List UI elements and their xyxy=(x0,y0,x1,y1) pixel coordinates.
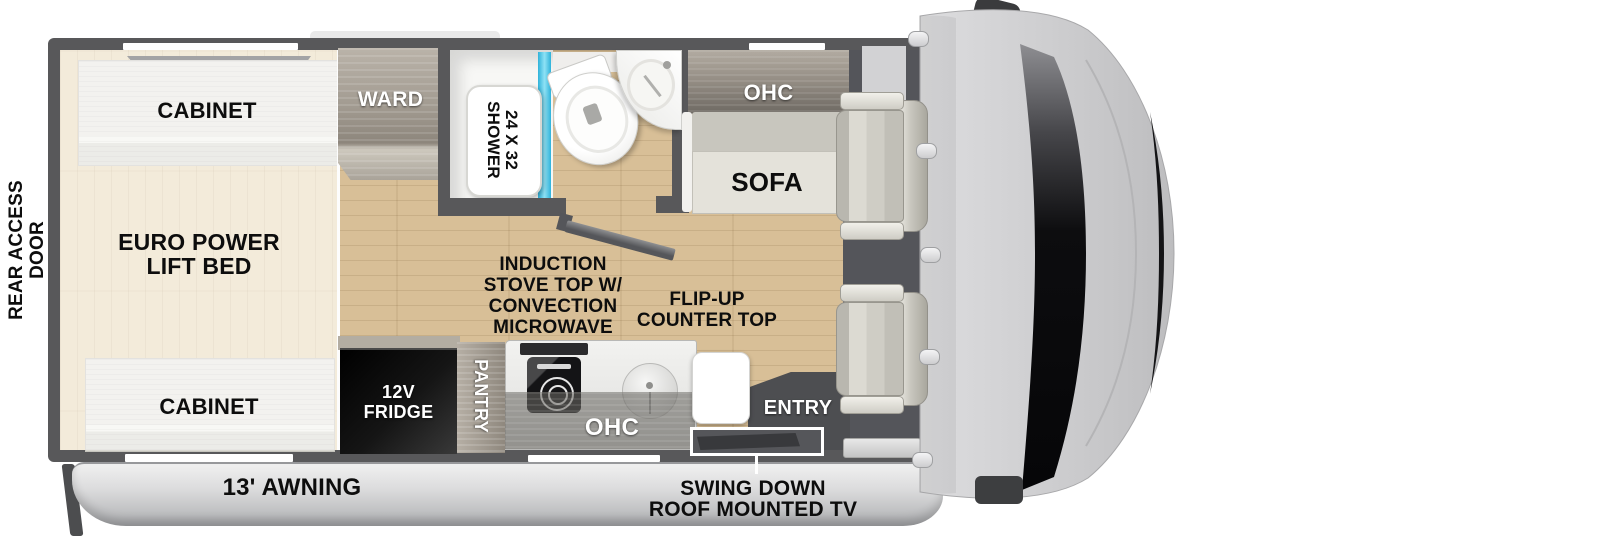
rear-access-door-label: REAR ACCESS DOOR xyxy=(5,130,49,370)
flip-up-counter-note: FLIP-UP COUNTER TOP xyxy=(617,288,797,332)
tv-note-label: SWING DOWN ROOF MOUNTED TV xyxy=(640,476,866,522)
bathroom-wall-bottom xyxy=(438,198,566,216)
awning-label: 13' AWNING xyxy=(182,475,402,501)
sink-faucet xyxy=(663,61,671,69)
stove-slot xyxy=(537,364,571,369)
door-hinge-bump xyxy=(916,143,937,159)
window-bottom-kitchen xyxy=(528,455,660,462)
seat-armrest xyxy=(840,396,904,414)
flip-up-counter xyxy=(692,352,750,424)
kitchen-sink-faucet xyxy=(646,382,653,389)
sofa-armrest-left xyxy=(682,112,692,212)
tv-screen xyxy=(697,433,809,450)
window-top-bedroom xyxy=(123,43,298,50)
rear-access-door-line2: DOOR xyxy=(27,221,48,279)
door-hinge-bump xyxy=(919,349,940,365)
entry-label: ENTRY xyxy=(748,396,848,420)
wardrobe-texture xyxy=(338,48,443,180)
passenger-seat xyxy=(836,92,928,240)
cabinet-top-label: CABINET xyxy=(78,96,336,126)
rear-access-door-line1: REAR ACCESS xyxy=(6,180,27,320)
door-hinge-bump xyxy=(920,247,941,263)
pantry-label: PANTRY xyxy=(470,344,492,448)
overhead-cabinet-kitchen-label: OHC xyxy=(556,414,668,442)
sofa-label: SOFA xyxy=(692,166,842,198)
fridge-12v: 12V FRIDGE xyxy=(340,348,457,454)
window-bottom-bedroom xyxy=(125,454,293,462)
door-hinge-bump xyxy=(908,31,929,47)
seat-armrest xyxy=(840,284,904,302)
counter-vent xyxy=(520,343,588,355)
running-board xyxy=(975,476,1023,504)
euro-power-lift-bed-label: EURO POWER LIFT BED xyxy=(60,227,338,281)
driver-seat xyxy=(836,284,928,414)
cabinet-bottom-label: CABINET xyxy=(85,392,333,422)
seat-armrest xyxy=(840,92,904,110)
wardrobe-label: WARD xyxy=(338,88,443,112)
swing-down-tv xyxy=(690,427,824,456)
door-hinge-bump xyxy=(912,452,933,468)
seat-cushion xyxy=(836,302,904,396)
seat-armrest xyxy=(840,222,904,240)
window-top-living xyxy=(749,43,825,50)
tv-leader-line xyxy=(755,456,758,474)
shower-label: 24 X 32 SHOWER xyxy=(481,90,523,190)
rv-floorplan-diagram: REAR ACCESS DOOR CABINET CABINET EURO PO… xyxy=(0,0,1600,554)
seat-cushion xyxy=(836,110,904,222)
cab-front xyxy=(878,0,1188,554)
overhead-cabinet-living-label: OHC xyxy=(688,80,849,106)
